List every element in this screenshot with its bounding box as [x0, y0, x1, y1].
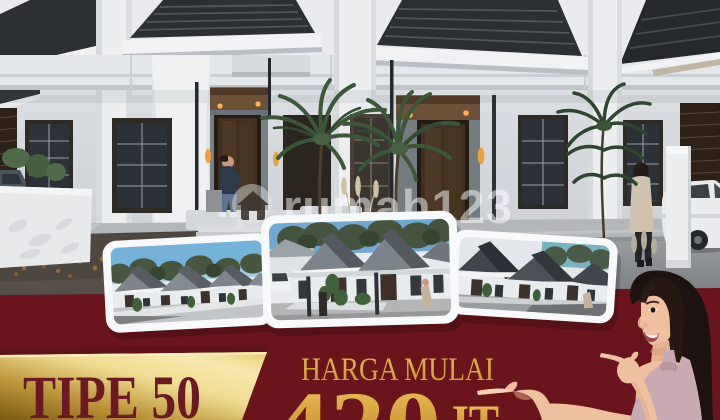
svg-text:420: 420: [274, 373, 441, 420]
svg-text:TIPE 50: TIPE 50: [23, 365, 201, 420]
svg-text:JT: JT: [446, 394, 499, 420]
